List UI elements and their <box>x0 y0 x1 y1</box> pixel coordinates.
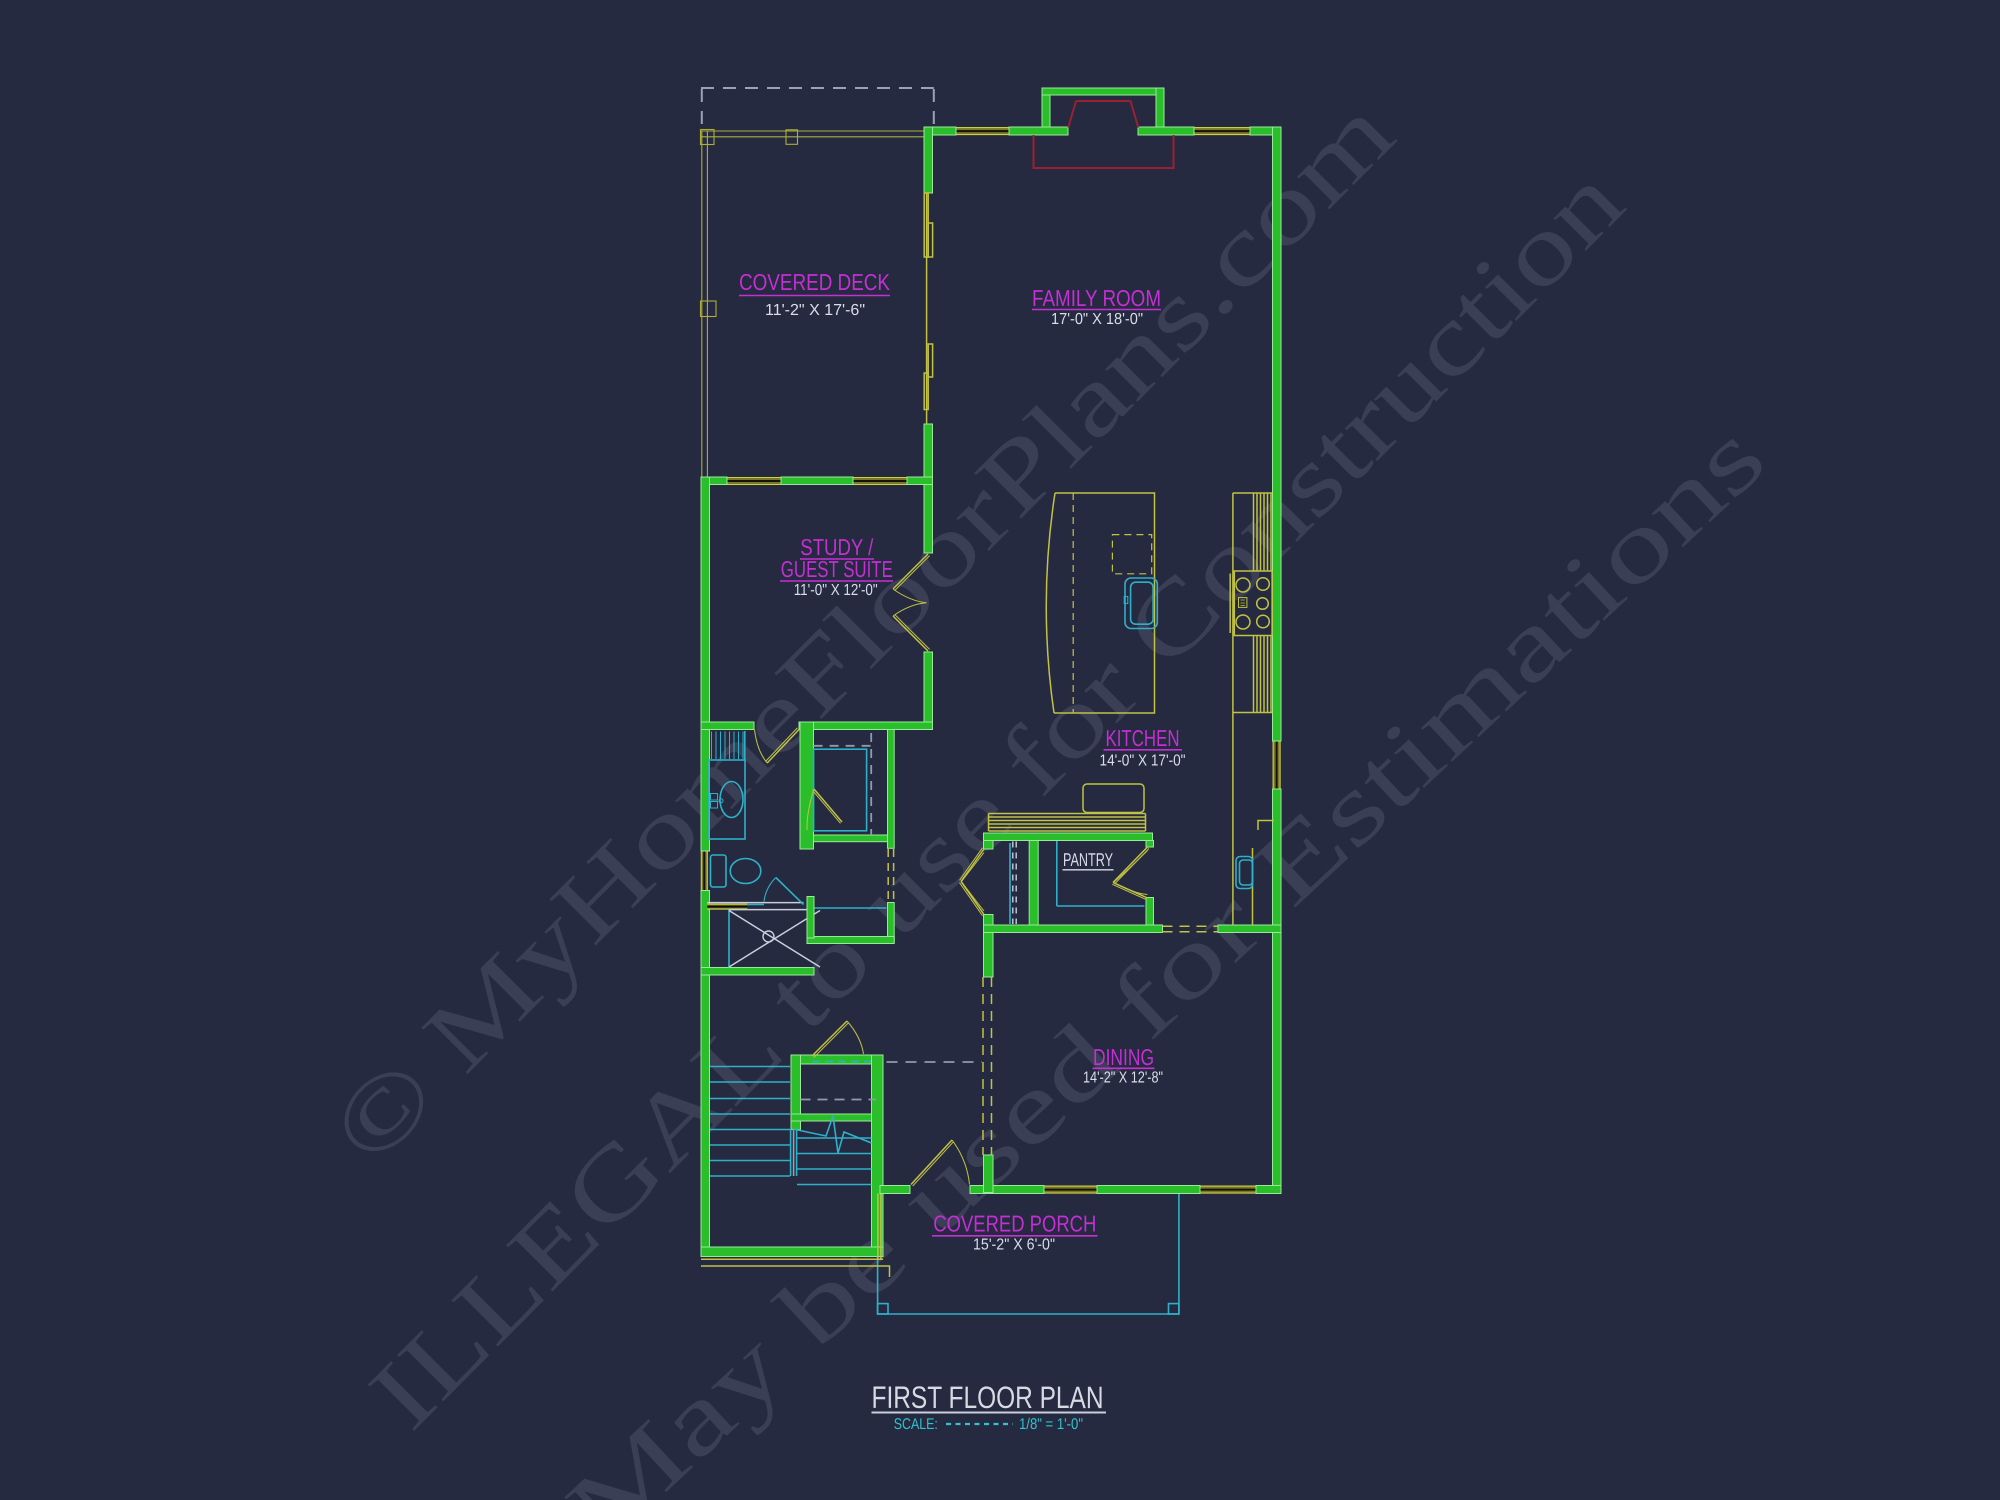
svg-text:PANTRY: PANTRY <box>1063 849 1113 870</box>
svg-text:SCALE:: SCALE: <box>894 1416 938 1433</box>
svg-text:KITCHEN: KITCHEN <box>1105 725 1179 751</box>
svg-text:14'-2" X 12'-8": 14'-2" X 12'-8" <box>1083 1069 1163 1086</box>
svg-text:FIRST FLOOR PLAN: FIRST FLOOR PLAN <box>871 1380 1103 1415</box>
svg-text:15'-2" X 6'-0": 15'-2" X 6'-0" <box>973 1236 1055 1253</box>
svg-text:17'-0" X 18'-0": 17'-0" X 18'-0" <box>1051 311 1143 328</box>
svg-text:11'-0" X 12'-0": 11'-0" X 12'-0" <box>794 582 878 599</box>
svg-text:FAMILY ROOM: FAMILY ROOM <box>1032 285 1161 311</box>
svg-text:DINING: DINING <box>1093 1044 1154 1070</box>
svg-text:COVERED PORCH: COVERED PORCH <box>933 1210 1096 1236</box>
svg-text:14'-0" X 17'-0": 14'-0" X 17'-0" <box>1099 752 1185 769</box>
svg-text:COVERED DECK: COVERED DECK <box>739 269 891 295</box>
svg-text:11'-2" X 17'-6": 11'-2" X 17'-6" <box>765 302 865 319</box>
svg-text:1/8" = 1'-0": 1/8" = 1'-0" <box>1019 1416 1083 1433</box>
svg-text:GUEST SUITE: GUEST SUITE <box>781 556 893 582</box>
